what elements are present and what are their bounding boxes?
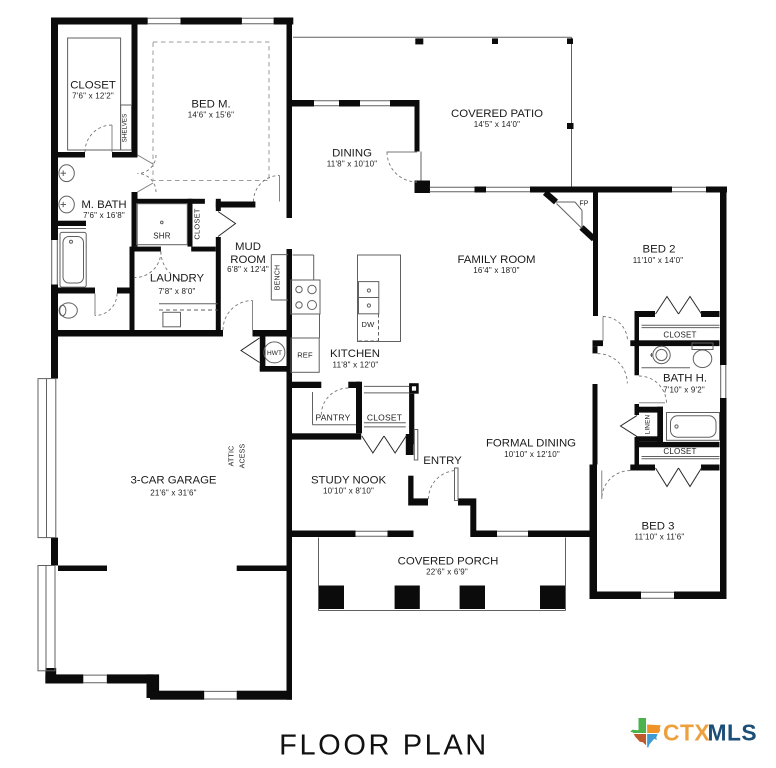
svg-text:ACESS: ACESS <box>240 444 247 469</box>
svg-text:3-CAR GARAGE: 3-CAR GARAGE <box>130 475 216 487</box>
svg-text:7'6" x 16'8": 7'6" x 16'8" <box>83 211 125 220</box>
svg-text:FORMAL DINING: FORMAL DINING <box>486 438 576 450</box>
svg-text:MUD: MUD <box>235 241 261 253</box>
svg-text:BED 3: BED 3 <box>642 521 675 533</box>
svg-text:21'6" x 31'6": 21'6" x 31'6" <box>150 489 196 498</box>
svg-text:6'8" x 12'4": 6'8" x 12'4" <box>227 265 269 274</box>
svg-text:BENCH: BENCH <box>275 265 282 291</box>
svg-text:BED M.: BED M. <box>191 99 230 111</box>
svg-text:FLOOR PLAN: FLOOR PLAN <box>279 730 489 762</box>
svg-text:CLOSET: CLOSET <box>193 208 202 239</box>
svg-text:FP: FP <box>579 201 588 208</box>
svg-text:FAMILY ROOM: FAMILY ROOM <box>457 254 535 266</box>
svg-text:ATTIC: ATTIC <box>229 446 236 467</box>
svg-text:CLOSET: CLOSET <box>70 80 116 92</box>
svg-text:LINEN: LINEN <box>645 414 652 434</box>
svg-text:COVERED PATIO: COVERED PATIO <box>451 108 543 120</box>
svg-text:7'8" x 8'0": 7'8" x 8'0" <box>158 287 195 296</box>
svg-text:10'10" x 8'10": 10'10" x 8'10" <box>323 487 374 496</box>
svg-text:PANTRY: PANTRY <box>316 413 351 423</box>
svg-text:COVERED PORCH: COVERED PORCH <box>398 556 499 568</box>
svg-text:BATH H.: BATH H. <box>663 373 707 385</box>
svg-text:LAUNDRY: LAUNDRY <box>150 273 205 285</box>
svg-text:16'4" x 18'0": 16'4" x 18'0" <box>473 266 519 275</box>
svg-text:14'6" x 15'6": 14'6" x 15'6" <box>188 111 234 120</box>
svg-text:KITCHEN: KITCHEN <box>330 348 380 360</box>
svg-text:7'6" x 12'2": 7'6" x 12'2" <box>72 92 114 101</box>
svg-text:DINING: DINING <box>332 148 372 160</box>
svg-text:ENTRY: ENTRY <box>423 455 462 467</box>
svg-text:11'10" x 11'6": 11'10" x 11'6" <box>635 533 685 542</box>
svg-text:10'10" x 12'10": 10'10" x 12'10" <box>504 450 560 459</box>
svg-text:STUDY NOOK: STUDY NOOK <box>311 475 387 487</box>
svg-text:11'8" x 10'10": 11'8" x 10'10" <box>327 160 378 169</box>
svg-text:CTX: CTX <box>663 720 710 746</box>
svg-text:REF: REF <box>297 351 313 360</box>
svg-text:11'8" x 12'0": 11'8" x 12'0" <box>333 361 379 370</box>
svg-text:SHELVES: SHELVES <box>122 114 129 143</box>
svg-text:M. BATH: M. BATH <box>81 199 126 211</box>
svg-text:CLOSET: CLOSET <box>367 413 402 423</box>
svg-text:SHR: SHR <box>153 232 171 241</box>
svg-text:11'10" x 14'0": 11'10" x 14'0" <box>633 256 684 265</box>
svg-text:CLOSET: CLOSET <box>663 447 696 456</box>
svg-text:DW: DW <box>362 320 376 329</box>
svg-text:BED 2: BED 2 <box>643 244 676 256</box>
svg-text:7'10" x 9'2": 7'10" x 9'2" <box>663 386 705 395</box>
svg-text:14'5" x 14'0": 14'5" x 14'0" <box>474 120 520 129</box>
svg-text:MLS: MLS <box>708 720 758 746</box>
svg-text:22'6" x 6'9": 22'6" x 6'9" <box>426 568 468 577</box>
svg-text:CLOSET: CLOSET <box>663 331 696 340</box>
svg-text:HWT: HWT <box>267 350 282 357</box>
